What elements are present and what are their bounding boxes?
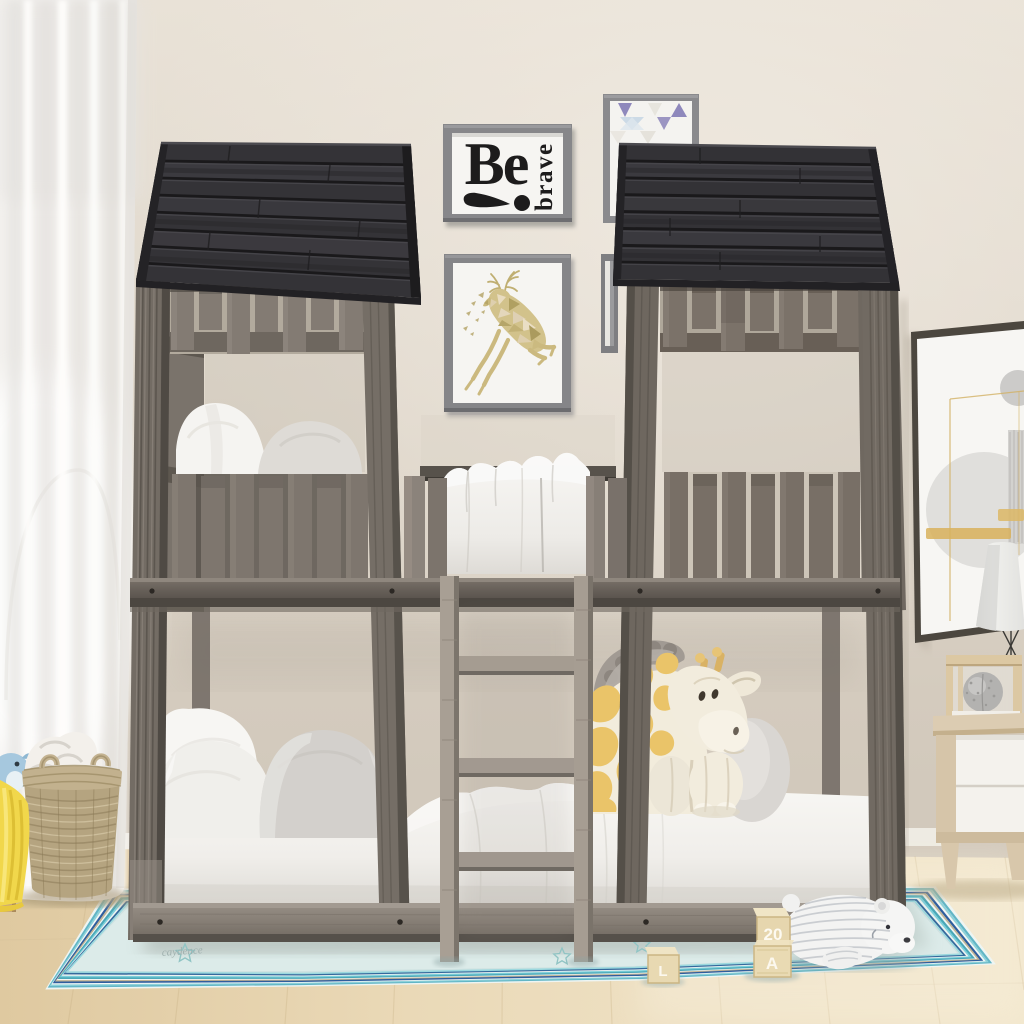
svg-text:Be: Be xyxy=(465,131,529,197)
svg-text:brave: brave xyxy=(531,142,558,211)
svg-text:L: L xyxy=(658,963,667,980)
svg-text:A: A xyxy=(766,954,778,973)
